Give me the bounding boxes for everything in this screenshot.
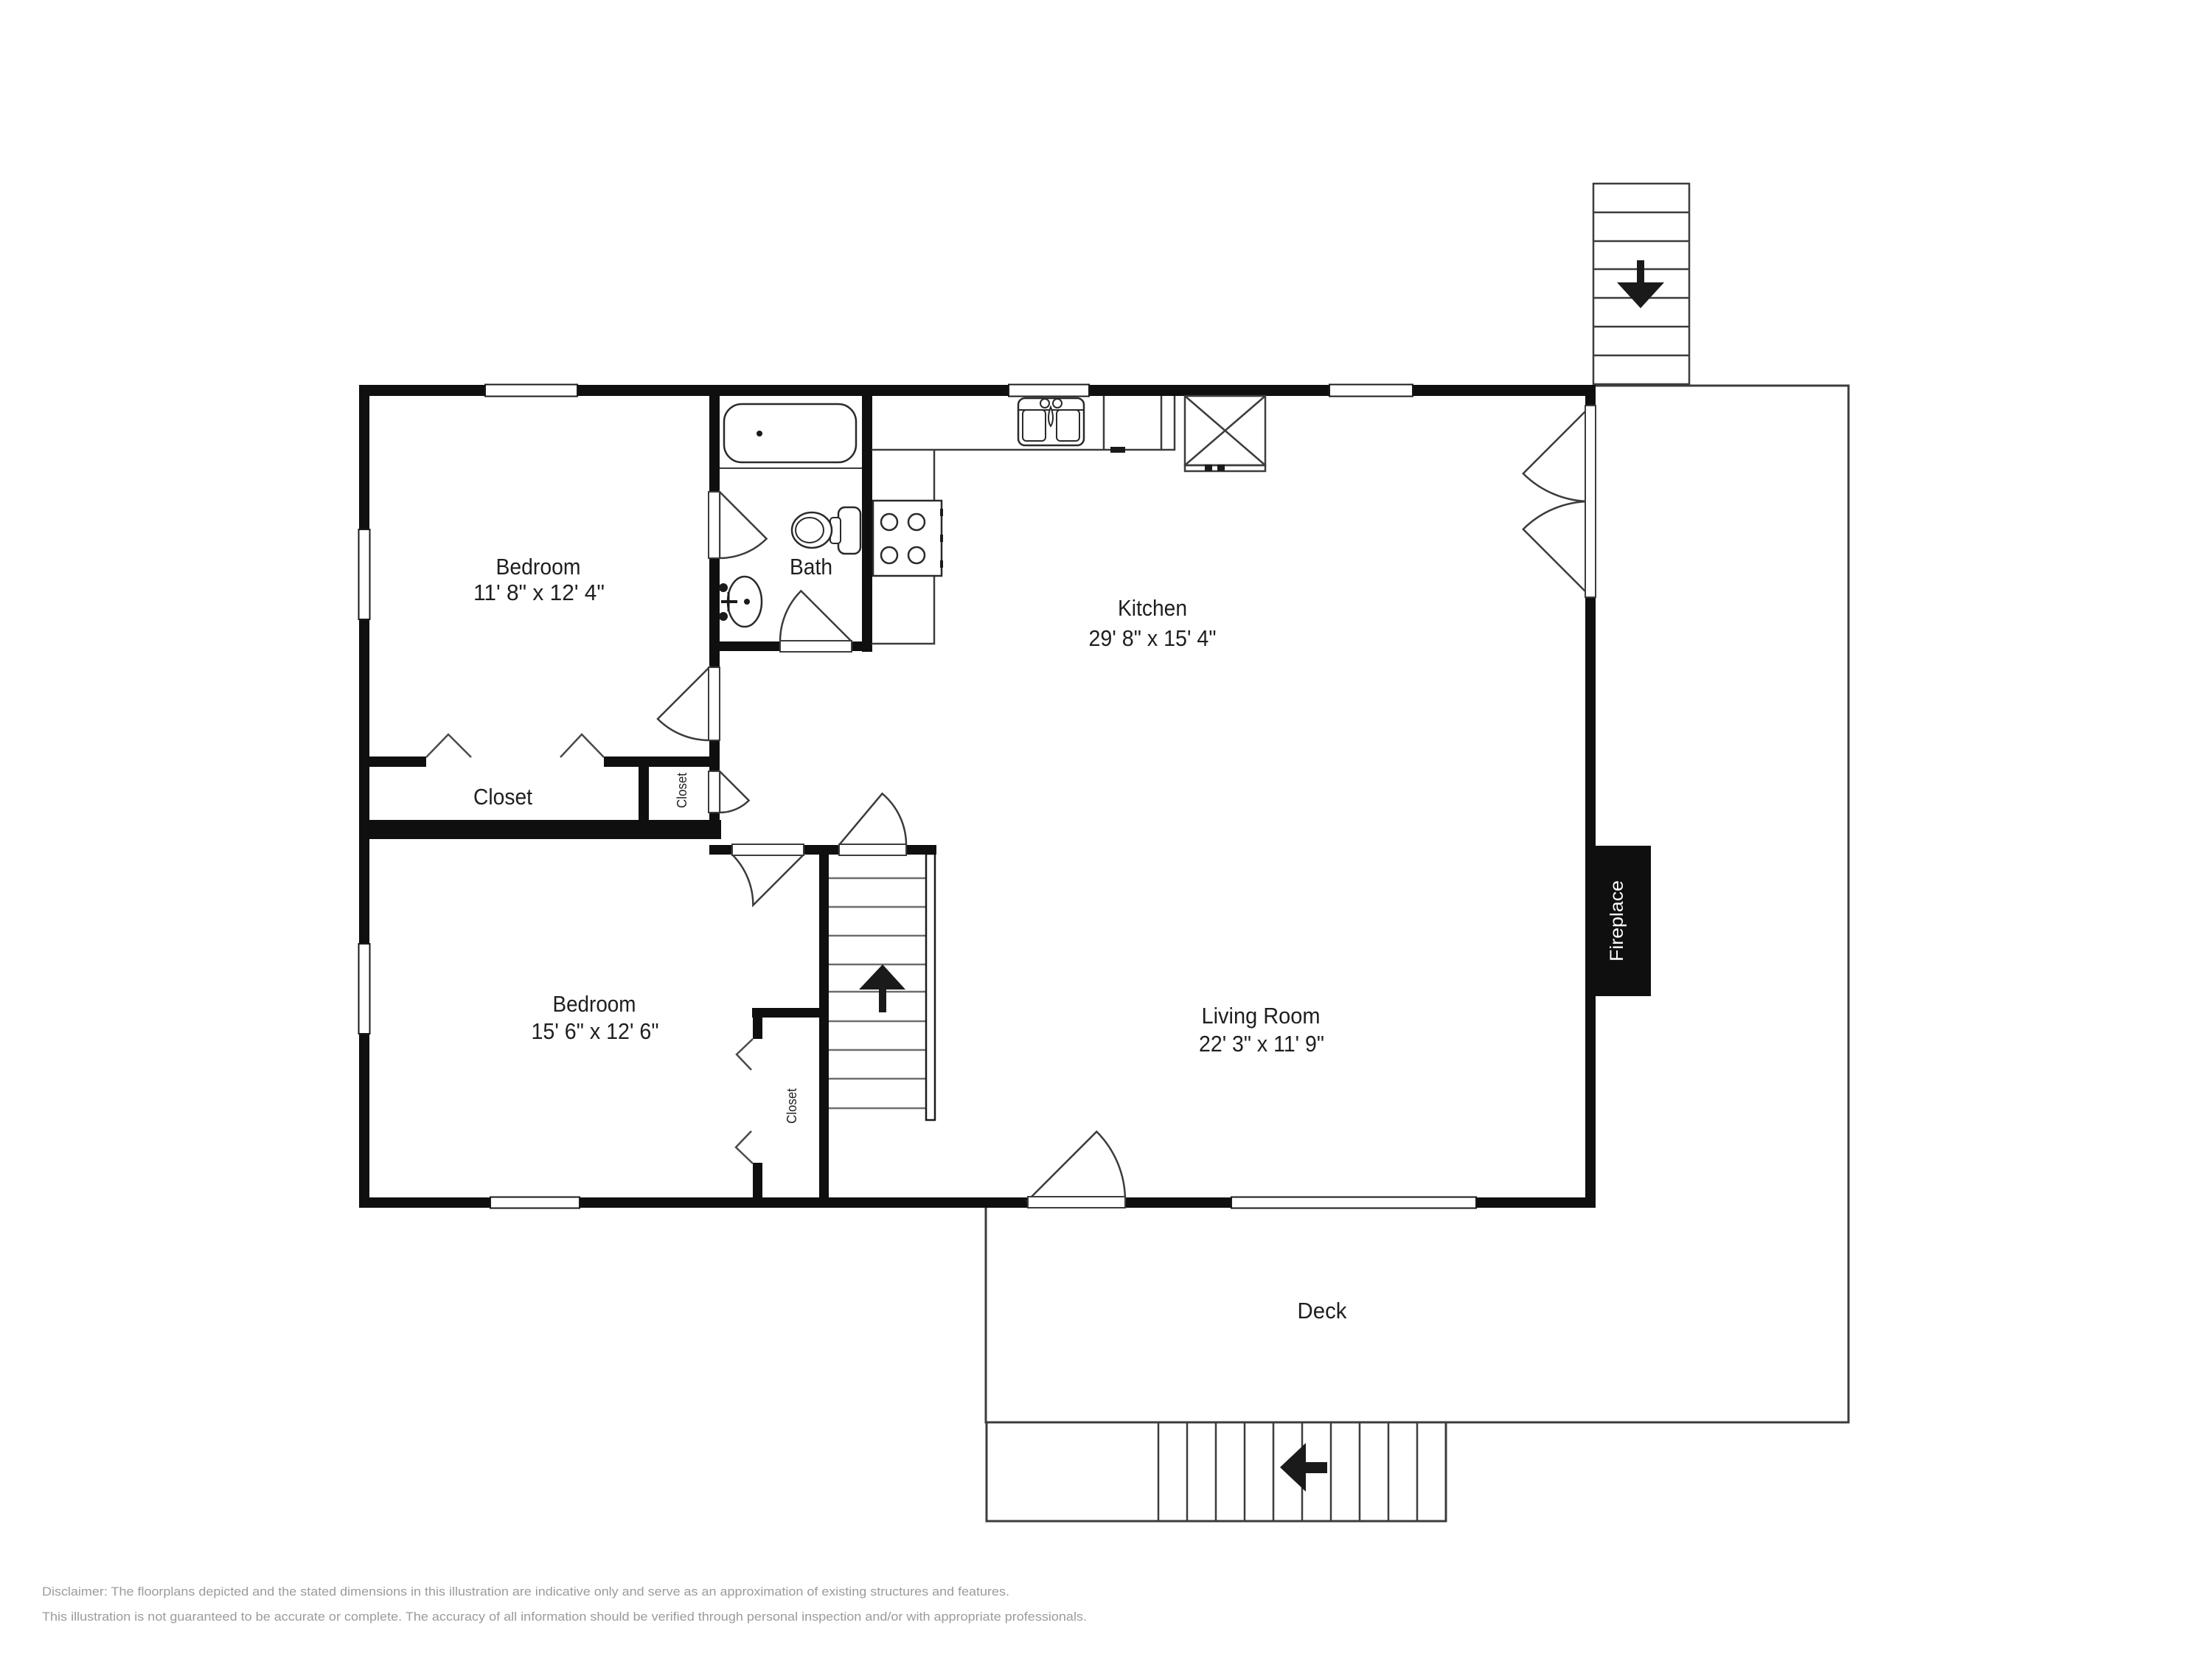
svg-text:15' 6" x 12' 6": 15' 6" x 12' 6" [532,1018,659,1044]
svg-text:22' 3" x 11' 9": 22' 3" x 11' 9" [1199,1031,1324,1057]
svg-text:This illustration is not guara: This illustration is not guaranteed to b… [42,1610,1087,1624]
svg-text:Closet: Closet [473,784,532,810]
svg-text:Fireplace: Fireplace [1607,880,1627,961]
svg-text:Disclaimer: The floorplans dep: Disclaimer: The floorplans depicted and … [42,1585,1009,1599]
svg-text:Kitchen: Kitchen [1118,595,1187,621]
svg-text:Bedroom: Bedroom [553,991,636,1017]
svg-text:Bath: Bath [790,554,832,580]
svg-text:Closet: Closet [675,773,689,808]
svg-text:Deck: Deck [1298,1298,1347,1324]
svg-text:Closet: Closet [785,1088,799,1124]
svg-text:Living Room: Living Room [1202,1003,1321,1029]
svg-text:Bedroom: Bedroom [496,554,581,580]
svg-text:29' 8" x 15' 4": 29' 8" x 15' 4" [1089,625,1217,651]
svg-text:11' 8" x 12' 4": 11' 8" x 12' 4" [473,580,605,605]
